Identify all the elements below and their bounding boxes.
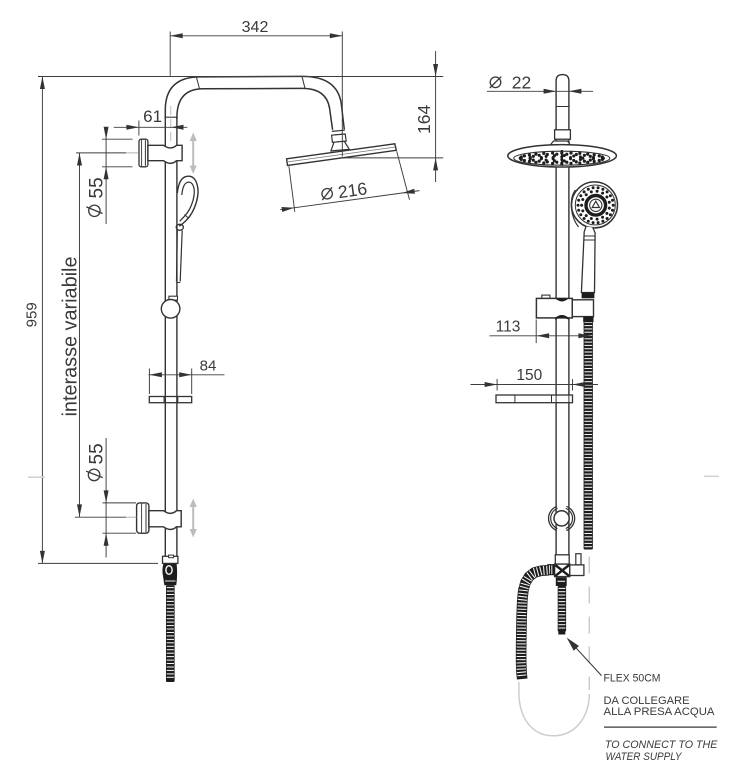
svg-text:959: 959	[24, 302, 41, 327]
svg-text:22: 22	[512, 72, 531, 92]
svg-text:216: 216	[337, 178, 369, 202]
svg-text:342: 342	[242, 19, 269, 36]
svg-text:FLEX 50CM: FLEX 50CM	[604, 673, 661, 685]
svg-text:164: 164	[414, 105, 434, 134]
svg-text:113: 113	[496, 318, 521, 335]
svg-text:TO CONNECT TO THE: TO CONNECT TO THE	[605, 739, 718, 751]
svg-text:84: 84	[200, 357, 217, 374]
svg-text:55: 55	[86, 177, 107, 198]
svg-text:61: 61	[143, 107, 162, 126]
svg-text:150: 150	[516, 367, 542, 384]
svg-text:interasse variabile: interasse variabile	[59, 257, 81, 417]
svg-text:WATER SUPPLY: WATER SUPPLY	[606, 751, 683, 763]
svg-text:ALLA PRESA ACQUA: ALLA PRESA ACQUA	[604, 706, 715, 718]
svg-text:55: 55	[86, 443, 107, 464]
